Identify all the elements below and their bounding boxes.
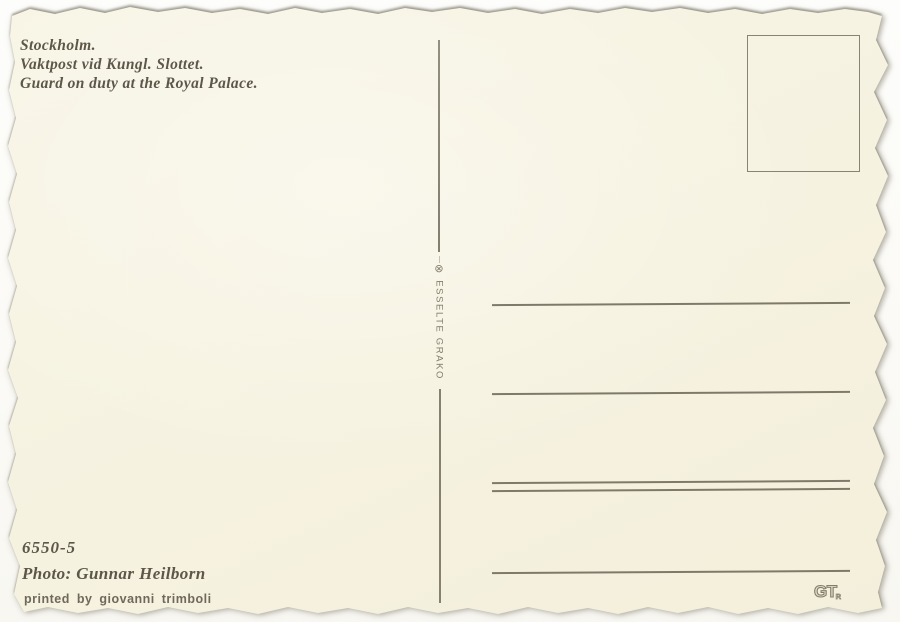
esselte-grako-label: ESSELTE GRAKO: [434, 280, 445, 380]
photo-credit: Photo: Gunnar Heilborn: [22, 564, 206, 584]
address-line-1: [492, 302, 850, 306]
caption-subtitle-english: Guard on duty at the Royal Palace.: [20, 74, 258, 93]
center-divider-top-segment: [438, 40, 440, 252]
gt-logo-letters: GT: [814, 582, 837, 601]
address-line-3-lower: [492, 488, 850, 492]
postcard-back: Stockholm. Vaktpost vid Kungl. Slottet. …: [0, 0, 900, 622]
esselte-logo-icon: ⊗: [433, 264, 445, 273]
center-divider-dash: [439, 256, 440, 263]
postcard: Stockholm. Vaktpost vid Kungl. Slottet. …: [0, 0, 900, 622]
caption-title-swedish: Stockholm.: [20, 36, 258, 55]
stamp-box: [747, 35, 860, 172]
address-line-2: [492, 391, 850, 395]
printer-mark-rotated-text: ⊗ESSELTE GRAKO: [434, 264, 447, 380]
gt-logo-registered-mark: R: [836, 592, 841, 601]
gt-printer-logo: GTR: [814, 582, 841, 602]
address-line-4: [492, 570, 850, 574]
caption-block: Stockholm. Vaktpost vid Kungl. Slottet. …: [20, 36, 258, 93]
address-line-3-upper: [492, 480, 850, 484]
catalog-number: 6550-5: [22, 538, 76, 558]
printed-by-credit: printed by giovanni trimboli: [24, 592, 212, 606]
caption-subtitle-swedish: Vaktpost vid Kungl. Slottet.: [20, 55, 258, 74]
photo-backdrop: Stockholm. Vaktpost vid Kungl. Slottet. …: [0, 0, 900, 622]
center-divider-bottom-segment: [439, 389, 441, 603]
